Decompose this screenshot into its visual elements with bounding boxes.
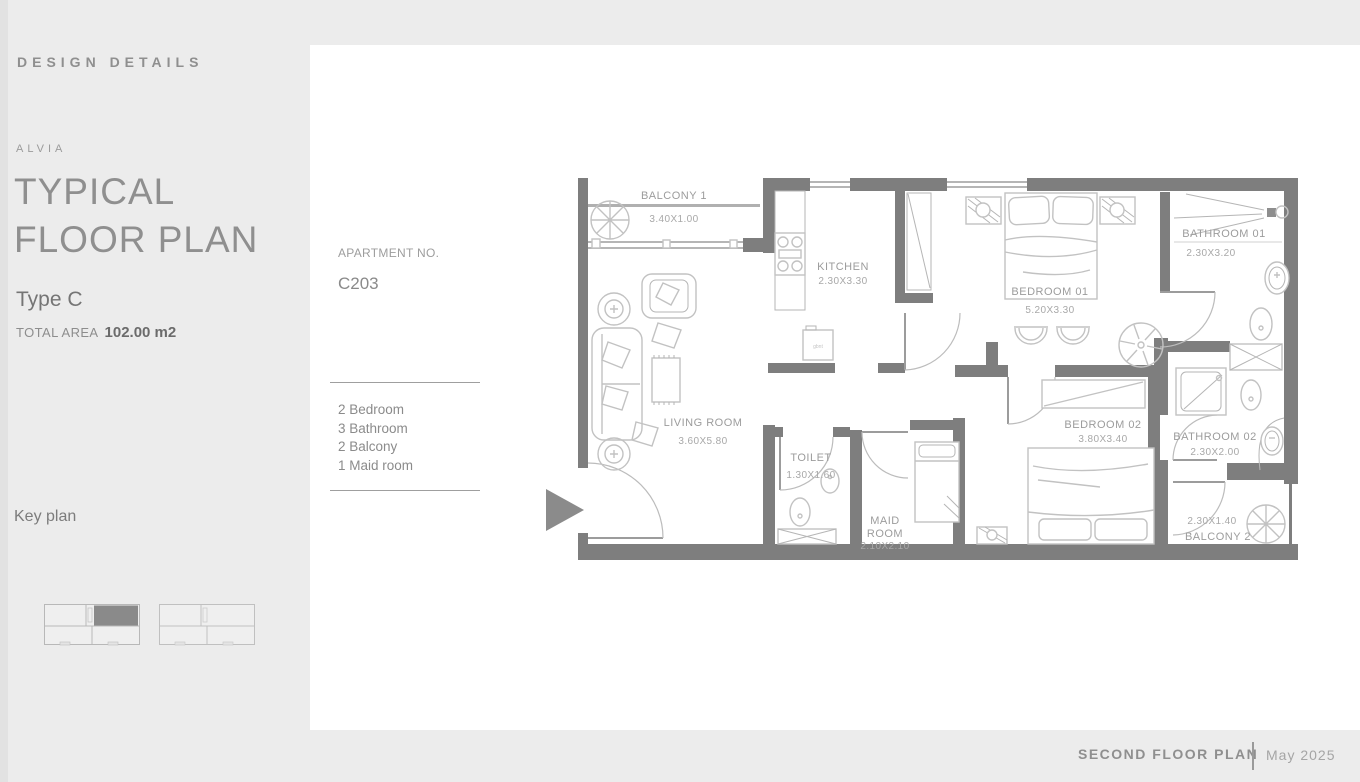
key-plan — [44, 600, 274, 652]
toilet-icon — [1250, 308, 1272, 340]
chair-icon — [1056, 327, 1090, 344]
apartment-no-label: APARTMENT NO. — [338, 246, 439, 260]
feature-item: 2 Bedroom — [338, 401, 413, 420]
room-label-balcony-2: BALCONY 2 — [1185, 531, 1251, 543]
appliance-label: gbnt — [813, 344, 823, 350]
feature-item: 1 Maid room — [338, 457, 413, 476]
room-label-bedroom-02: BEDROOM 02 — [1064, 419, 1141, 431]
room-label-balcony-1: BALCONY 1 — [641, 190, 707, 202]
shower-head-icon — [1267, 208, 1276, 217]
room-dims-living-room: 3.60X5.80 — [678, 436, 727, 447]
floor-plan: gbnt — [578, 178, 1298, 562]
room-label-toilet: TOILET — [790, 452, 831, 464]
section-label: DESIGN DETAILS — [17, 54, 203, 70]
room-dims-bathroom-01: 2.30X3.20 — [1186, 248, 1235, 259]
room-dims-kitchen: 2.30X3.30 — [818, 276, 867, 287]
toilet-icon — [1241, 380, 1261, 410]
page-title-line1: TYPICAL — [14, 168, 258, 216]
room-label-kitchen: KITCHEN — [817, 261, 869, 273]
feature-item: 3 Bathroom — [338, 420, 413, 439]
total-area: TOTAL AREA102.00 m2 — [16, 324, 176, 341]
plant-icon — [591, 201, 629, 239]
divider-line — [330, 382, 480, 383]
page-title: TYPICAL FLOOR PLAN — [14, 168, 258, 264]
bedroom-01-furniture — [966, 193, 1163, 367]
plant-icon — [1247, 505, 1285, 543]
room-dims-bedroom-02: 3.80X3.40 — [1078, 434, 1127, 445]
footer-date: May 2025 — [1266, 747, 1335, 763]
footer-divider — [1252, 742, 1254, 770]
room-dims-bathroom-02: 2.30X2.00 — [1190, 447, 1239, 458]
brand-name: ALVIA — [16, 143, 66, 155]
feature-item: 2 Balcony — [338, 438, 413, 457]
footer-plan-label: SECOND FLOOR PLAN — [1078, 746, 1258, 762]
room-dims-balcony-2: 2.30X1.40 — [1187, 516, 1236, 527]
room-label-bathroom-01: BATHROOM 01 — [1182, 228, 1266, 240]
total-area-value: 102.00 m2 — [105, 324, 177, 341]
room-label-maid-1: MAID — [870, 515, 900, 527]
room-label-living-room: LIVING ROOM — [664, 417, 743, 429]
toilet-icon — [790, 498, 810, 526]
room-dims-maid: 2.10X2.10 — [860, 541, 909, 552]
left-edge-strip — [0, 0, 8, 782]
unit-type: Type C — [16, 288, 83, 312]
room-dims-toilet: 1.30X1.60 — [786, 470, 835, 481]
key-plan-label: Key plan — [14, 508, 76, 526]
apartment-number: C203 — [338, 274, 379, 294]
room-dims-bedroom-01: 5.20X3.30 — [1025, 305, 1074, 316]
page: { "sidebar": { "section_label": "DESIGN … — [0, 0, 1360, 782]
feature-list: 2 Bedroom 3 Bathroom 2 Balcony 1 Maid ro… — [338, 401, 413, 475]
total-area-label: TOTAL AREA — [16, 325, 99, 340]
key-plan-thumbnail-active — [45, 605, 140, 646]
bed-icon — [915, 442, 959, 522]
chair-icon — [1014, 327, 1048, 344]
bedroom-02-furniture — [977, 448, 1154, 544]
balcony-2-furniture — [1247, 505, 1285, 543]
page-title-line2: FLOOR PLAN — [14, 216, 258, 264]
divider-line — [330, 490, 480, 491]
maid-room-furniture — [915, 442, 959, 522]
room-label-bedroom-01: BEDROOM 01 — [1011, 286, 1088, 298]
room-label-bathroom-02: BATHROOM 02 — [1173, 431, 1257, 443]
key-plan-thumbnail-other — [160, 605, 255, 646]
key-plan-highlight-unit — [94, 606, 138, 626]
room-dims-balcony-1: 3.40X1.00 — [649, 214, 698, 225]
room-label-maid-2: ROOM — [867, 528, 903, 540]
